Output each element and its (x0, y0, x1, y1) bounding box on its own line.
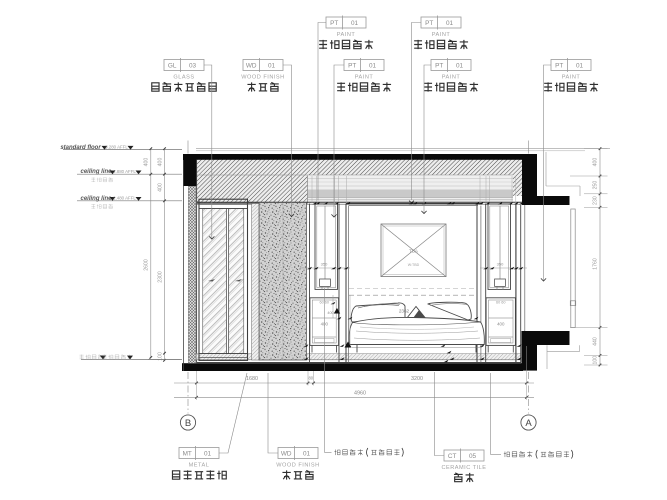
svg-text:3.280 AFFL: 3.280 AFFL (105, 145, 128, 150)
svg-text:01: 01 (446, 20, 454, 27)
svg-text:4960: 4960 (354, 390, 366, 396)
svg-text:B: B (185, 418, 191, 429)
svg-text:400: 400 (593, 158, 599, 167)
svg-text:2362: 2362 (399, 309, 410, 314)
svg-text:400: 400 (157, 183, 163, 192)
svg-text:PT: PT (330, 20, 338, 27)
svg-text:400: 400 (327, 311, 333, 315)
svg-text:CT: CT (448, 453, 457, 460)
svg-text:PAINT: PAINT (337, 32, 356, 38)
svg-text:PT: PT (348, 63, 356, 70)
svg-text:WOOD FINISH: WOOD FINISH (276, 463, 319, 469)
svg-text:WOOD FINISH: WOOD FINISH (241, 75, 284, 81)
svg-text:PT: PT (435, 63, 443, 70)
svg-text:3200: 3200 (411, 376, 423, 382)
svg-text:2300: 2300 (157, 271, 163, 283)
svg-text:230: 230 (593, 196, 599, 205)
svg-text:2.880 AFFL: 2.880 AFFL (113, 169, 136, 174)
svg-text:standard floor: standard floor (60, 145, 101, 151)
svg-text:PAINT: PAINT (562, 75, 581, 81)
svg-text:05: 05 (469, 453, 477, 460)
svg-text:1760: 1760 (593, 258, 599, 270)
svg-text:01: 01 (303, 451, 311, 458)
svg-text:440: 440 (593, 337, 599, 346)
svg-text:PT: PT (425, 20, 433, 27)
svg-text:ceiling line: ceiling line (80, 196, 112, 202)
svg-text:GLASS: GLASS (173, 75, 194, 81)
svg-text:01: 01 (351, 20, 359, 27)
svg-text:PT: PT (555, 63, 563, 70)
svg-text:100: 100 (593, 356, 599, 365)
svg-text:01: 01 (268, 63, 276, 70)
svg-text:2600: 2600 (144, 259, 150, 271)
svg-text:A: A (525, 418, 532, 429)
svg-text:WD: WD (281, 451, 292, 458)
svg-text:01: 01 (369, 63, 377, 70)
svg-text:GL: GL (168, 63, 177, 70)
svg-text:2.480 AFFL: 2.480 AFFL (113, 196, 136, 201)
svg-text:250: 250 (593, 181, 599, 190)
svg-text:CERAMIC TILE: CERAMIC TILE (441, 465, 486, 471)
svg-text:METAL: METAL (189, 463, 210, 469)
svg-text:WD: WD (246, 63, 257, 70)
svg-text:PAINT: PAINT (355, 75, 374, 81)
svg-text:350: 350 (497, 262, 504, 267)
svg-text:400: 400 (497, 322, 505, 327)
svg-text:TBA: TBA (409, 249, 419, 254)
svg-text:01: 01 (576, 63, 584, 70)
svg-text:60 60: 60 60 (496, 301, 506, 305)
svg-text:03: 03 (189, 63, 197, 70)
svg-text:W:TBD: W:TBD (408, 263, 420, 267)
svg-text:1680: 1680 (246, 376, 258, 382)
svg-text:80: 80 (308, 375, 313, 380)
svg-text:400: 400 (157, 158, 163, 167)
svg-text:PAINT: PAINT (442, 75, 461, 81)
svg-text:400: 400 (144, 158, 150, 167)
svg-text:PAINT: PAINT (432, 32, 451, 38)
svg-text:350: 350 (321, 262, 328, 267)
svg-text:MT: MT (183, 451, 192, 458)
svg-text:ceiling line: ceiling line (80, 169, 112, 175)
svg-text:01: 01 (204, 451, 212, 458)
svg-text:01: 01 (456, 63, 464, 70)
